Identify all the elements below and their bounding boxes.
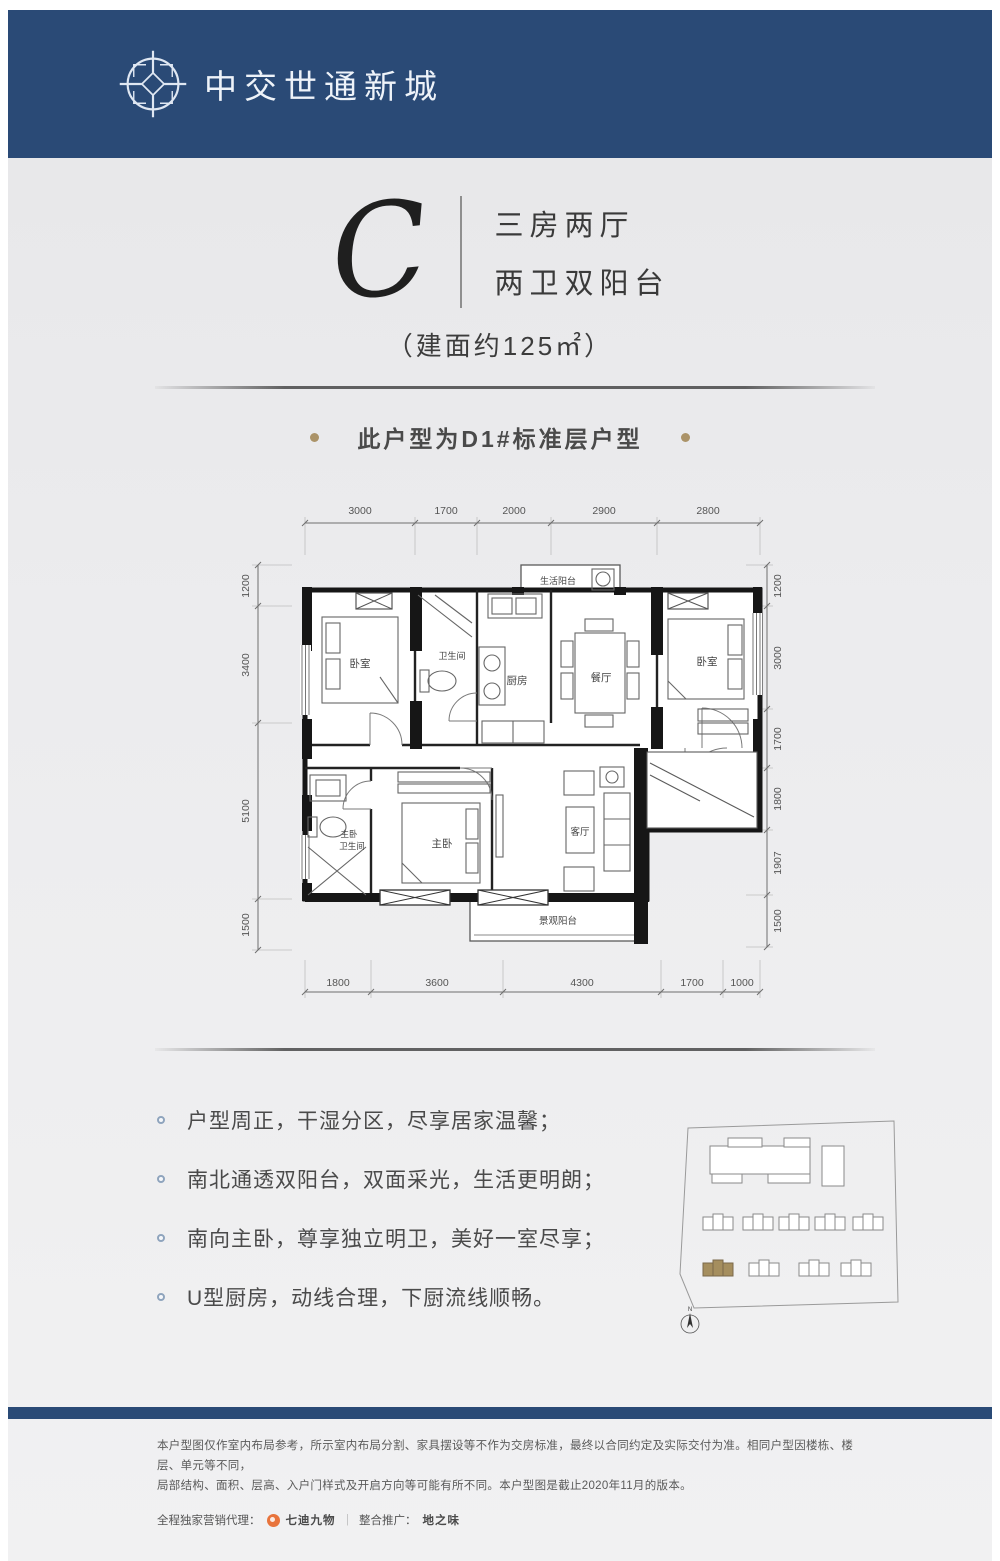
dim-top-5: 2800 xyxy=(696,505,720,517)
room-label-kitchen: 厨房 xyxy=(507,674,528,687)
list-item: 户型周正，干湿分区，尽享居家温馨； xyxy=(157,1108,687,1132)
siteplan-map: N xyxy=(672,1112,912,1347)
room-label-dining: 餐厅 xyxy=(591,671,612,684)
poster-page: 中交世通新城 C 三房两厅 两卫双阳台 （建面约125㎡） 此户型为D1#标准层… xyxy=(0,0,1000,1561)
compass-icon: N xyxy=(681,1307,699,1333)
dim-bottom-2: 3600 xyxy=(425,977,449,989)
promo-name: 地之味 xyxy=(423,1512,461,1528)
footer-bar xyxy=(8,1407,992,1419)
divider-bottom xyxy=(155,1048,875,1051)
divider-top xyxy=(155,386,875,389)
feature-text: U型厨房，动线合理，下厨流线顺畅。 xyxy=(187,1282,555,1312)
room-label-master-bath-1: 主卧 xyxy=(340,829,358,839)
footer: 本户型图仅作室内布局参考，所示室内布局分割、家具摆设等不作为交房标准，最终以合同… xyxy=(157,1436,867,1528)
gold-dot-icon xyxy=(681,433,690,442)
brand-name: 中交世通新城 xyxy=(204,60,444,108)
unit-type-line1: 三房两厅 xyxy=(494,202,669,244)
dim-top-3: 2000 xyxy=(502,505,526,517)
floorplan-drawing: 3000 1700 2000 2900 2800 1800 3600 4300 … xyxy=(230,495,790,1010)
list-item: 南向主卧，尊享独立明卫，美好一室尽享； xyxy=(157,1226,687,1250)
dim-top-1: 3000 xyxy=(348,505,372,517)
unit-type-lines: 三房两厅 两卫双阳台 xyxy=(494,202,669,302)
dim-right-4: 1800 xyxy=(772,787,784,811)
unit-type-line2: 两卫双阳台 xyxy=(494,260,669,302)
room-label-bathroom: 卫生间 xyxy=(438,650,465,661)
feature-text: 南向主卧，尊享独立明卫，美好一室尽享； xyxy=(187,1223,605,1253)
brand-compass-logo-icon xyxy=(118,49,188,119)
disclaimer-line-1: 本户型图仅作室内布局参考，所示室内布局分割、家具摆设等不作为交房标准，最终以合同… xyxy=(157,1436,867,1476)
unit-type-block: C 三房两厅 两卫双阳台 xyxy=(0,188,1000,316)
dim-right-6: 1500 xyxy=(772,909,784,933)
disclaimer-line-2: 局部结构、面积、层高、入户门样式及开启方向等可能有所不同。本户型图是截止2020… xyxy=(157,1476,867,1496)
unit-note-row: 此户型为D1#标准层户型 xyxy=(0,420,1000,454)
feature-list: 户型周正，干湿分区，尽享居家温馨； 南北通透双阳台，双面采光，生活更明朗； 南向… xyxy=(157,1108,687,1344)
unit-area: （建面约125㎡） xyxy=(0,326,1000,363)
feature-text: 南北通透双阳台，双面采光，生活更明朗； xyxy=(187,1164,605,1194)
list-item: 南北通透双阳台，双面采光，生活更明朗； xyxy=(157,1167,687,1191)
dim-bottom-1: 1800 xyxy=(326,977,350,989)
site-buildings xyxy=(703,1138,883,1276)
room-label-living: 客厅 xyxy=(570,826,590,838)
unit-letter: C xyxy=(324,183,435,321)
list-item: U型厨房，动线合理，下厨流线顺畅。 xyxy=(157,1285,687,1309)
dim-right-2: 3000 xyxy=(772,646,784,670)
room-label-life-balcony: 生活阳台 xyxy=(540,575,576,586)
agency-logo-icon xyxy=(267,1514,280,1527)
header-banner: 中交世通新城 xyxy=(8,10,992,158)
ring-bullet-icon xyxy=(157,1234,165,1242)
dim-left-1: 1200 xyxy=(240,574,252,598)
dim-bottom-5: 1000 xyxy=(730,977,754,989)
agency-name: 七迪九物 xyxy=(286,1512,336,1528)
dim-right-1: 1200 xyxy=(772,574,784,598)
room-label-bedroom-left: 卧室 xyxy=(350,657,371,670)
vertical-rule xyxy=(460,196,462,308)
unit-note: 此户型为D1#标准层户型 xyxy=(357,420,642,454)
dim-top-4: 2900 xyxy=(592,505,616,517)
ring-bullet-icon xyxy=(157,1293,165,1301)
dim-left-2: 3400 xyxy=(240,653,252,677)
room-label-master-bath-2: 卫生间 xyxy=(339,841,365,851)
room-label-view-balcony: 景观阳台 xyxy=(539,915,577,927)
brand-lockup: 中交世通新城 xyxy=(118,49,444,119)
highlighted-building xyxy=(703,1260,733,1276)
room-label-bedroom-right: 卧室 xyxy=(697,655,718,668)
promo-label: 整合推广： xyxy=(359,1512,417,1528)
entry-stair-area xyxy=(647,752,757,828)
dim-left-4: 1500 xyxy=(240,913,252,937)
ring-bullet-icon xyxy=(157,1175,165,1183)
feature-text: 户型周正，干湿分区，尽享居家温馨； xyxy=(187,1105,561,1135)
dim-bottom-3: 4300 xyxy=(570,977,594,989)
agency-row: 全程独家营销代理： 七迪九物 ｜ 整合推广： 地之味 xyxy=(157,1512,867,1528)
gold-dot-icon xyxy=(310,433,319,442)
dim-bottom-4: 1700 xyxy=(680,977,704,989)
dim-top-2: 1700 xyxy=(434,505,458,517)
dim-right-3: 1700 xyxy=(772,727,784,751)
room-label-master-bedroom: 主卧 xyxy=(432,837,453,850)
agency-label: 全程独家营销代理： xyxy=(157,1512,261,1528)
ring-bullet-icon xyxy=(157,1116,165,1124)
compass-north-label: N xyxy=(688,1307,692,1313)
dim-right-5: 1907 xyxy=(772,851,784,875)
dim-left-3: 5100 xyxy=(240,799,252,823)
separator: ｜ xyxy=(342,1512,354,1528)
